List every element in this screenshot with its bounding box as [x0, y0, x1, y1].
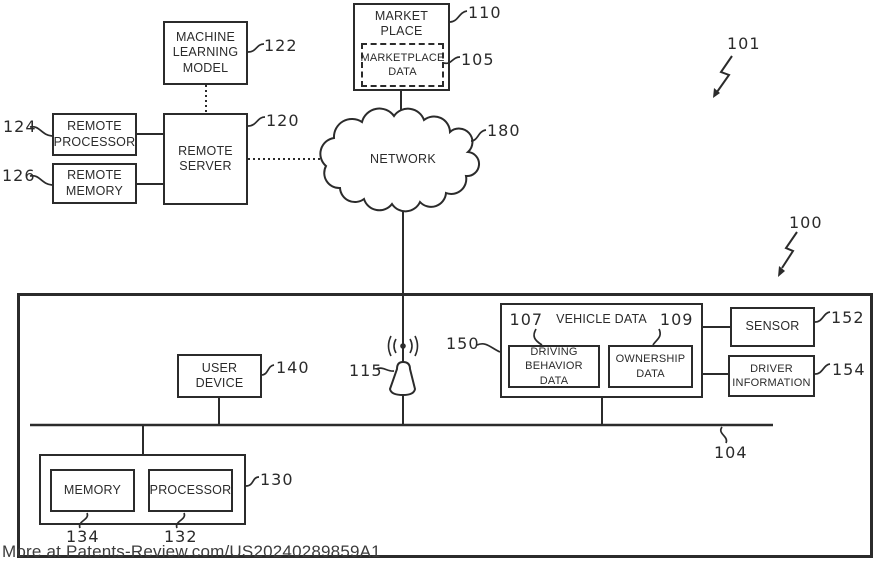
ref-network: 180 — [487, 121, 521, 140]
remote-memory-box: REMOTE MEMORY — [52, 163, 137, 204]
leader-180 — [471, 130, 486, 141]
sensor-box: SENSOR — [730, 307, 815, 347]
processor-label: PROCESSOR — [150, 483, 232, 498]
ref-driver-information: 154 — [832, 360, 866, 379]
leader-122 — [248, 44, 264, 52]
user-device-box: USER DEVICE — [177, 354, 262, 398]
zigzag-arrow-100 — [778, 232, 797, 277]
machine-learning-model-box: MACHINE LEARNING MODEL — [163, 21, 248, 85]
ref-remote-processor: 124 — [3, 117, 37, 136]
leader-110 — [450, 11, 467, 22]
marketplace-label: MARKET PLACE — [375, 9, 428, 40]
remote-memory-label: REMOTE MEMORY — [66, 168, 123, 199]
driving-behavior-data-label: DRIVING BEHAVIOR DATA — [510, 345, 598, 388]
driver-information-label: DRIVER INFORMATION — [732, 362, 810, 391]
remote-server-label: REMOTE SERVER — [178, 144, 233, 175]
marketplace-data-box: MARKETPLACE DATA — [361, 43, 444, 87]
ref-vehicle-system: 100 — [789, 213, 823, 232]
driver-information-box: DRIVER INFORMATION — [728, 355, 815, 397]
ref-sensor: 152 — [831, 308, 865, 327]
ref-onboard-computer: 130 — [260, 470, 294, 489]
marketplace-data-label: MARKETPLACE DATA — [360, 51, 444, 80]
patent-figure: MACHINE LEARNING MODEL REMOTE PROCESSOR … — [0, 0, 880, 574]
network-label: NETWORK — [365, 152, 441, 166]
ref-marketplace: 110 — [468, 3, 502, 22]
ownership-data-box: OWNERSHIP DATA — [608, 345, 693, 388]
driving-behavior-data-box: DRIVING BEHAVIOR DATA — [508, 345, 600, 388]
zigzag-arrow-101 — [713, 56, 732, 98]
vehicle-data-label: VEHICLE DATA — [556, 312, 647, 327]
ref-system-environment: 101 — [727, 34, 761, 53]
ref-ownership-data: 109 — [660, 310, 694, 329]
remote-processor-label: REMOTE PROCESSOR — [54, 119, 136, 150]
remote-processor-box: REMOTE PROCESSOR — [52, 113, 137, 156]
memory-box: MEMORY — [50, 469, 135, 512]
remote-server-box: REMOTE SERVER — [163, 113, 248, 205]
ref-bus: 104 — [714, 443, 748, 462]
ref-remote-memory: 126 — [2, 166, 36, 185]
ref-remote-server: 120 — [266, 111, 300, 130]
ref-antenna: 115 — [349, 361, 383, 380]
ownership-data-label: OWNERSHIP DATA — [616, 352, 686, 381]
ref-marketplace-data: 105 — [461, 50, 495, 69]
ref-user-device: 140 — [276, 358, 310, 377]
leader-120 — [248, 117, 265, 126]
memory-label: MEMORY — [64, 483, 121, 498]
watermark-link[interactable]: More at Patents-Review.com/US20240289859… — [2, 542, 381, 562]
ref-driving-behavior-data: 107 — [510, 310, 544, 329]
vehicle-data-header: 107 VEHICLE DATA 109 — [502, 310, 701, 329]
sensor-label: SENSOR — [746, 319, 800, 334]
machine-learning-model-label: MACHINE LEARNING MODEL — [173, 30, 239, 76]
ref-vehicle-data: 150 — [446, 334, 480, 353]
user-device-label: USER DEVICE — [196, 361, 244, 392]
processor-box: PROCESSOR — [148, 469, 233, 512]
ref-machine-learning-model: 122 — [264, 36, 298, 55]
